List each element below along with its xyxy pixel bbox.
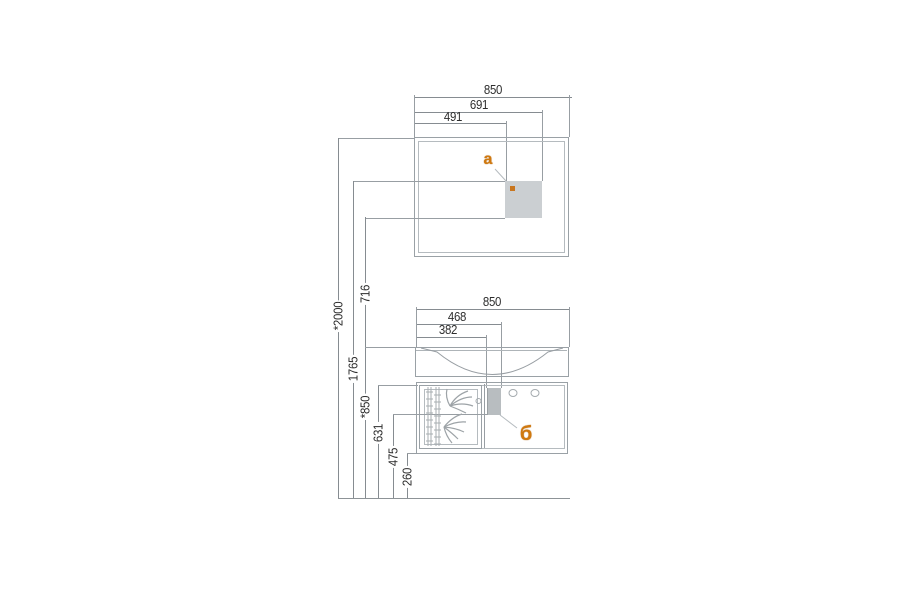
leader-line-a: [495, 169, 506, 181]
drawing-detail-layer: [0, 0, 900, 600]
technical-drawing-canvas: 850 691 491 a 850 468 382 б *2000 1765: [0, 0, 900, 600]
bamboo-leaves-decor: [444, 389, 473, 443]
door-knob-icon: [476, 399, 481, 404]
mounting-hole-icon: [531, 390, 539, 397]
sink-basin-curve: [421, 348, 563, 375]
mounting-hole-icon: [509, 390, 517, 397]
bamboo-stalks-decor: [426, 387, 441, 446]
leader-line-b: [500, 415, 517, 428]
